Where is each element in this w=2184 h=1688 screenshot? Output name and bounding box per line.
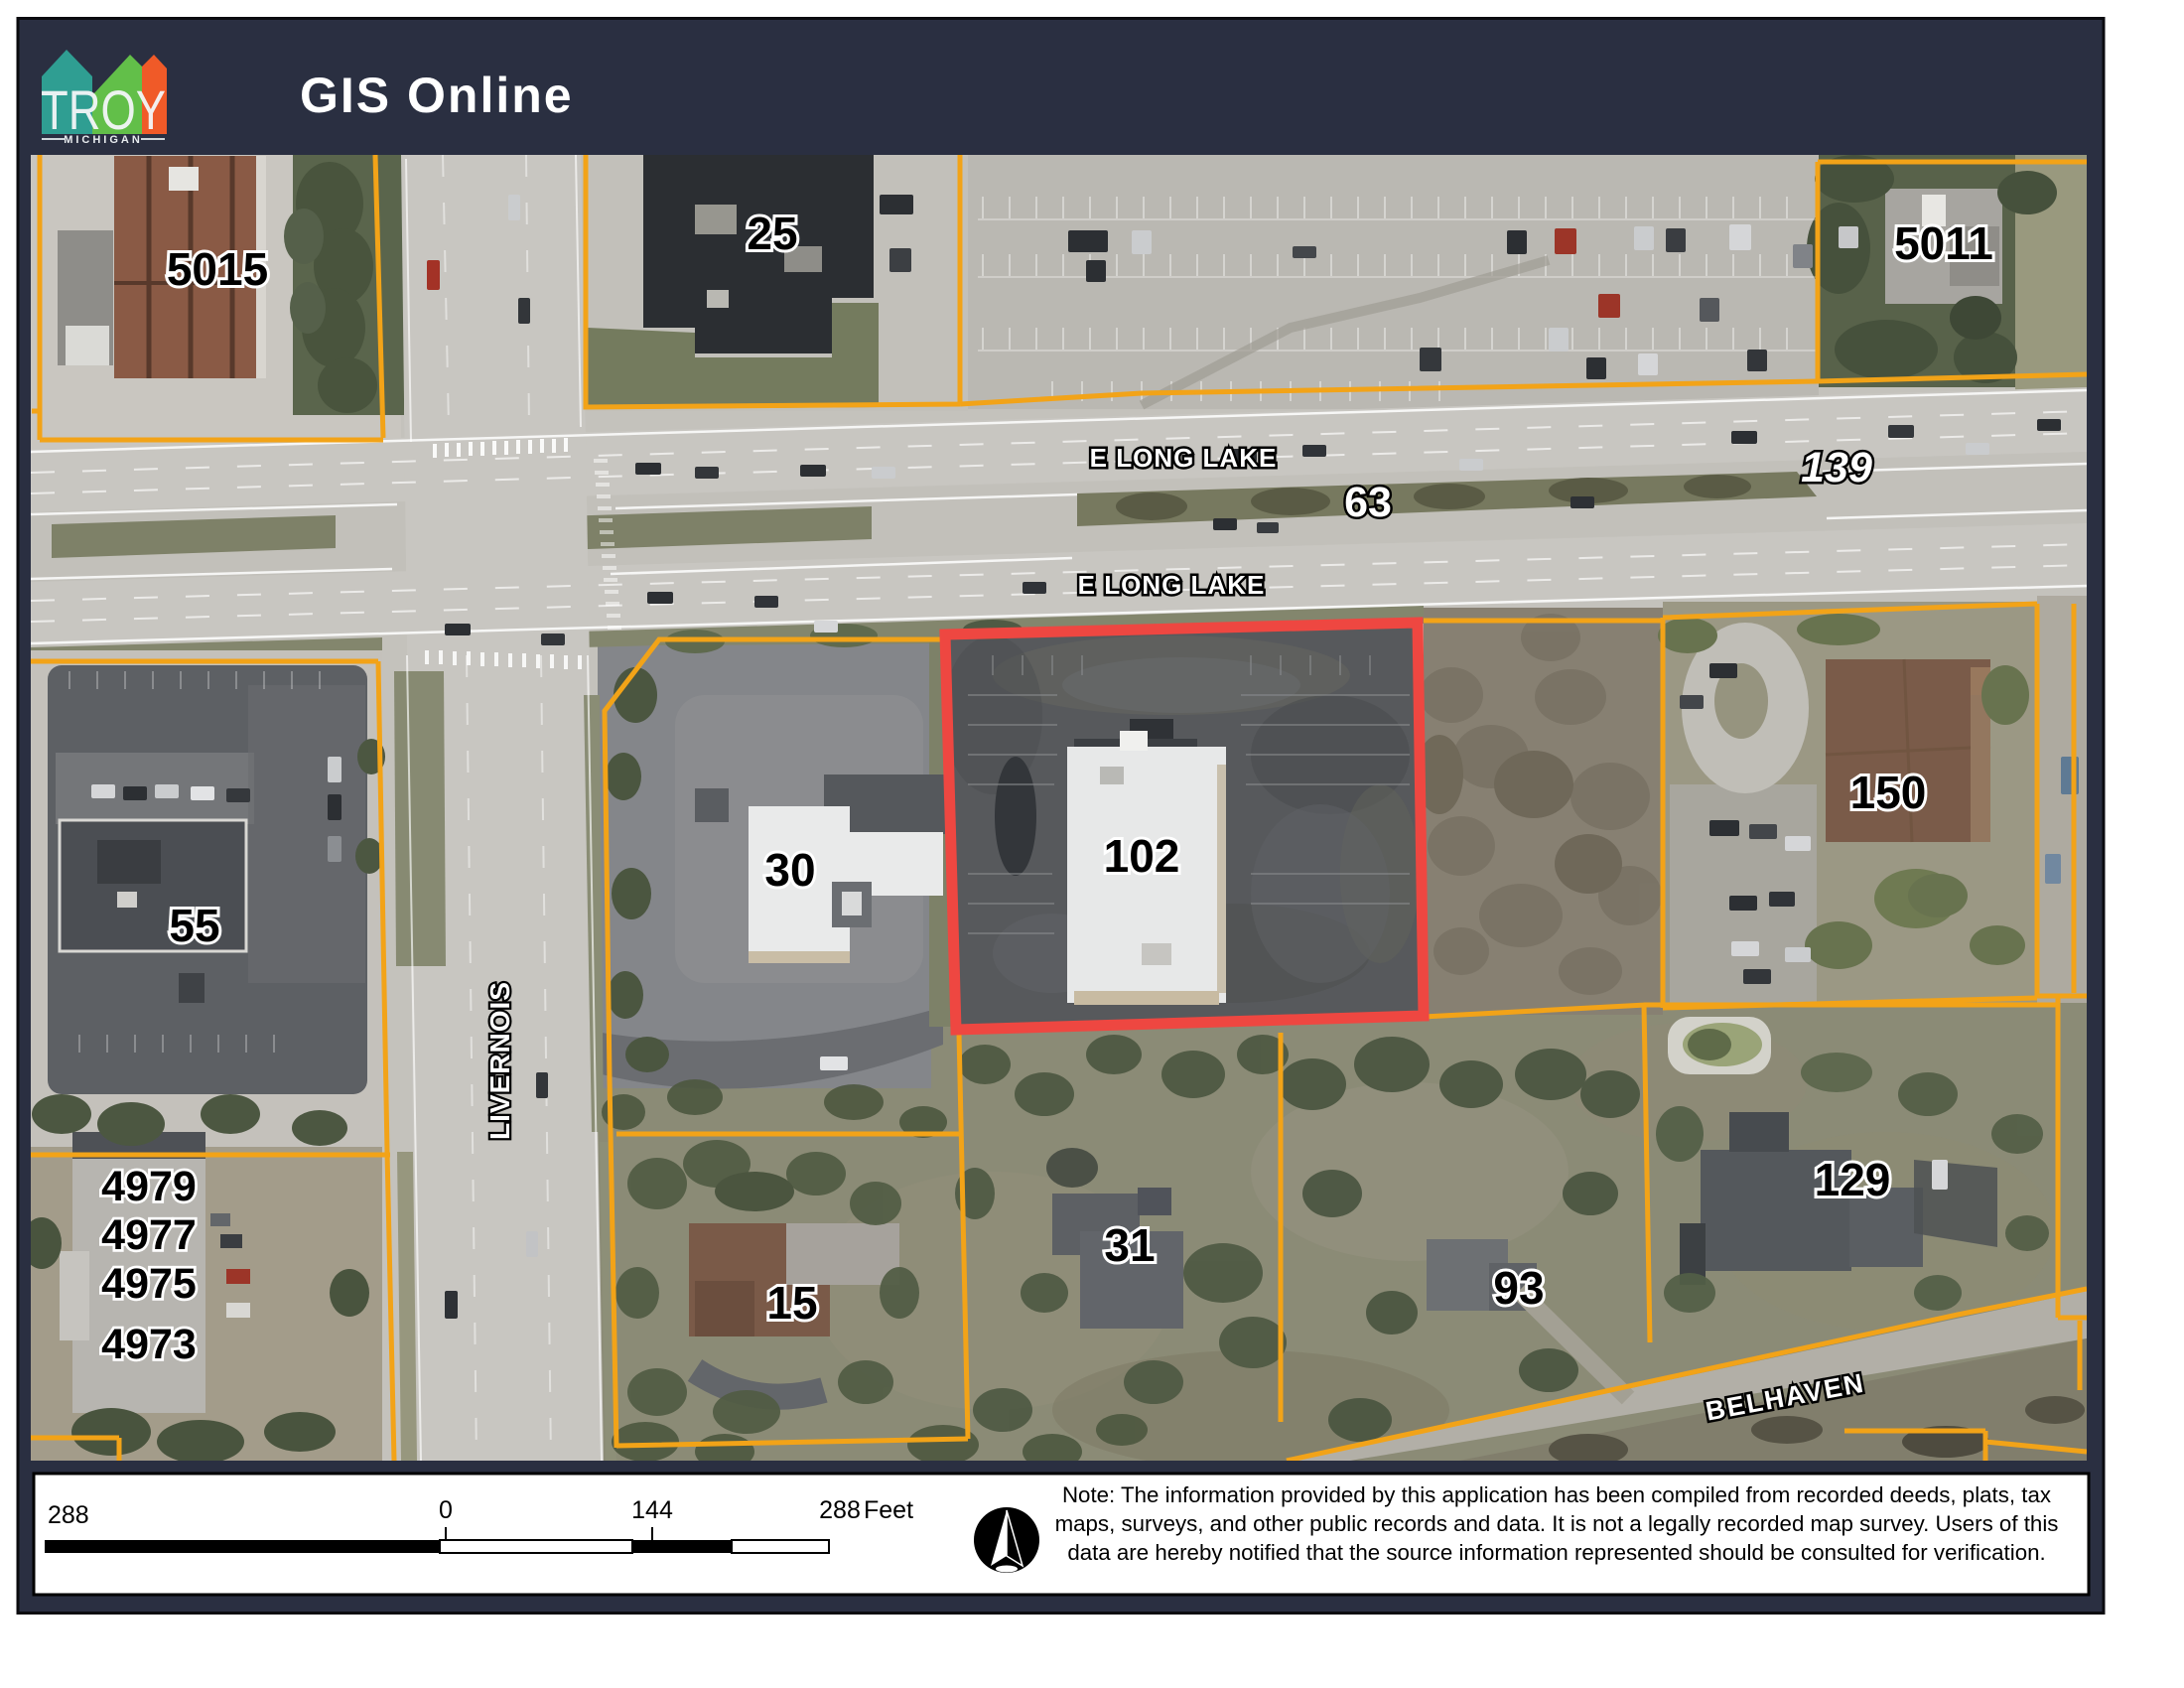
svg-text:31: 31 bbox=[1104, 1219, 1155, 1271]
svg-text:144: 144 bbox=[631, 1496, 673, 1524]
svg-text:93: 93 bbox=[1493, 1262, 1544, 1314]
svg-text:30: 30 bbox=[764, 844, 815, 896]
svg-text:15: 15 bbox=[766, 1277, 817, 1329]
svg-text:4975: 4975 bbox=[101, 1260, 197, 1308]
svg-text:TROY: TROY bbox=[41, 78, 166, 141]
svg-text:4973: 4973 bbox=[101, 1321, 197, 1368]
svg-text:150: 150 bbox=[1850, 767, 1927, 818]
svg-text:25: 25 bbox=[747, 208, 797, 259]
svg-text:129: 129 bbox=[1815, 1154, 1891, 1205]
svg-text:data are hereby notified that: data are hereby notified that the source… bbox=[1067, 1540, 2045, 1565]
svg-text:288: 288 bbox=[819, 1496, 861, 1524]
svg-text:139: 139 bbox=[1801, 444, 1872, 492]
svg-text:MICHIGAN: MICHIGAN bbox=[64, 134, 143, 146]
svg-text:5011: 5011 bbox=[1894, 217, 1993, 269]
svg-text:E LONG LAKE: E LONG LAKE bbox=[1090, 443, 1278, 473]
svg-text:Note: The information provided: Note: The information provided by this a… bbox=[1062, 1482, 2051, 1507]
svg-text:Feet: Feet bbox=[864, 1496, 913, 1524]
svg-text:5015: 5015 bbox=[167, 243, 268, 295]
svg-text:102: 102 bbox=[1104, 830, 1180, 882]
svg-text:63: 63 bbox=[1344, 479, 1392, 526]
svg-text:55: 55 bbox=[169, 900, 219, 951]
svg-text:LIVERNOIS: LIVERNOIS bbox=[484, 981, 515, 1140]
svg-text:4977: 4977 bbox=[101, 1211, 197, 1259]
svg-text:GIS Online: GIS Online bbox=[300, 68, 574, 123]
svg-text:maps, surveys, and other publi: maps, surveys, and other public records … bbox=[1055, 1511, 2059, 1536]
svg-text:4979: 4979 bbox=[101, 1163, 197, 1210]
svg-text:0: 0 bbox=[439, 1496, 453, 1524]
svg-text:288: 288 bbox=[48, 1501, 89, 1529]
svg-text:E LONG LAKE: E LONG LAKE bbox=[1078, 570, 1266, 600]
